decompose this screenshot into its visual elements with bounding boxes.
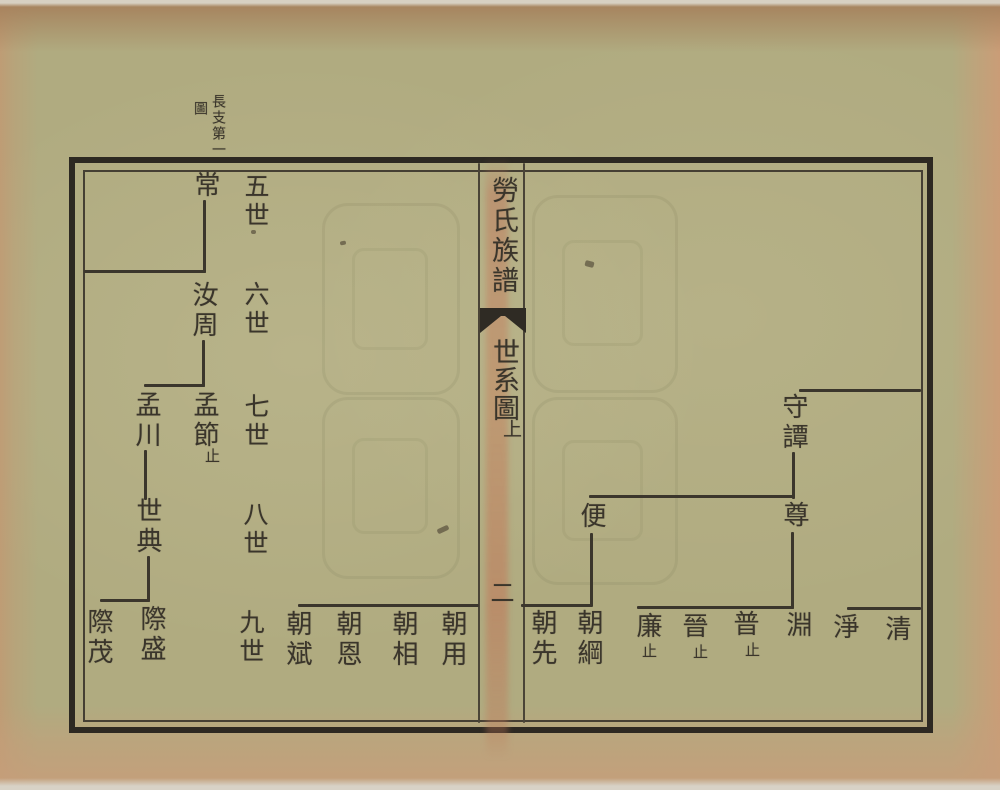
- tree-node-zun: 尊: [781, 501, 807, 531]
- sibling-line: [799, 389, 921, 392]
- tree-node-pu: 普: [731, 610, 757, 640]
- gutter-right-rule: [523, 163, 525, 723]
- sibling-line: [298, 604, 479, 607]
- gutter-page-number: 二: [488, 580, 512, 608]
- margin-label-branch: 長支第一: [211, 94, 225, 158]
- descent-line: [791, 532, 794, 609]
- generation-label-8: 八世: [242, 501, 267, 559]
- tree-node-chaoxiang: 朝相: [390, 610, 416, 670]
- tree-node-ruzhou: 汝周: [190, 281, 216, 341]
- tree-node-jisheng: 際盛: [138, 605, 164, 665]
- generation-label-6: 六世: [243, 281, 268, 339]
- margin-label-chart: 圖: [193, 101, 207, 117]
- generation-label-9: 九世: [238, 609, 263, 667]
- gutter-part-label: 上: [501, 419, 520, 442]
- gutter-section-title: 世系圖: [490, 338, 517, 422]
- tree-node-yuan: 淵: [784, 611, 810, 641]
- generation-label-5: 五世: [243, 173, 268, 231]
- stop-annotation: 止: [641, 643, 656, 658]
- tree-node-jing: 淨: [831, 613, 857, 643]
- descent-line: [147, 556, 150, 602]
- tree-node-chaobin: 朝斌: [284, 610, 310, 670]
- descent-line: [144, 450, 147, 500]
- descent-line: [792, 452, 795, 499]
- tree-node-shidian: 世典: [134, 497, 160, 557]
- ink-speck: [251, 230, 256, 234]
- generation-label-7: 七世: [243, 393, 268, 451]
- sibling-line: [847, 607, 921, 610]
- genealogy-scan-page: 長支第一 圖 勞氏族譜 世系圖 上 二 五世 六世 七世 八世 九世 常 汝周: [0, 0, 1000, 790]
- sibling-line: [589, 495, 795, 498]
- tree-node-mengchuan: 孟川: [133, 391, 159, 451]
- tree-node-shoutan: 守譚: [780, 393, 806, 453]
- descent-line: [203, 200, 206, 273]
- tree-node-chaoxian: 朝先: [529, 609, 555, 669]
- tree-node-chaogang: 朝綱: [575, 609, 601, 669]
- tree-node-mengjie: 孟節: [191, 391, 217, 451]
- tree-node-chaoen: 朝恩: [334, 610, 360, 670]
- tree-node-bian: 便: [578, 502, 604, 532]
- sibling-line: [637, 606, 794, 609]
- sibling-line: [100, 599, 150, 602]
- sibling-line: [521, 604, 592, 607]
- stop-annotation: 止: [692, 644, 707, 659]
- tree-node-lian: 廉: [634, 612, 660, 642]
- gutter-left-rule: [478, 163, 480, 723]
- tree-node-chang: 常: [192, 171, 218, 201]
- stop-annotation: 止: [744, 642, 759, 657]
- stop-annotation: 止: [204, 448, 219, 463]
- sibling-line: [144, 384, 205, 387]
- descent-line: [202, 340, 205, 387]
- tree-node-jin: 晉: [680, 612, 706, 642]
- tree-node-qing: 清: [883, 615, 909, 645]
- fishtail-mark-icon: [480, 308, 526, 334]
- tree-node-chaoyong: 朝用: [439, 610, 465, 670]
- sibling-line: [84, 270, 206, 273]
- descent-line: [590, 533, 593, 607]
- gutter-book-title: 勞氏族譜: [489, 176, 516, 296]
- tree-node-jimao: 際茂: [85, 608, 111, 668]
